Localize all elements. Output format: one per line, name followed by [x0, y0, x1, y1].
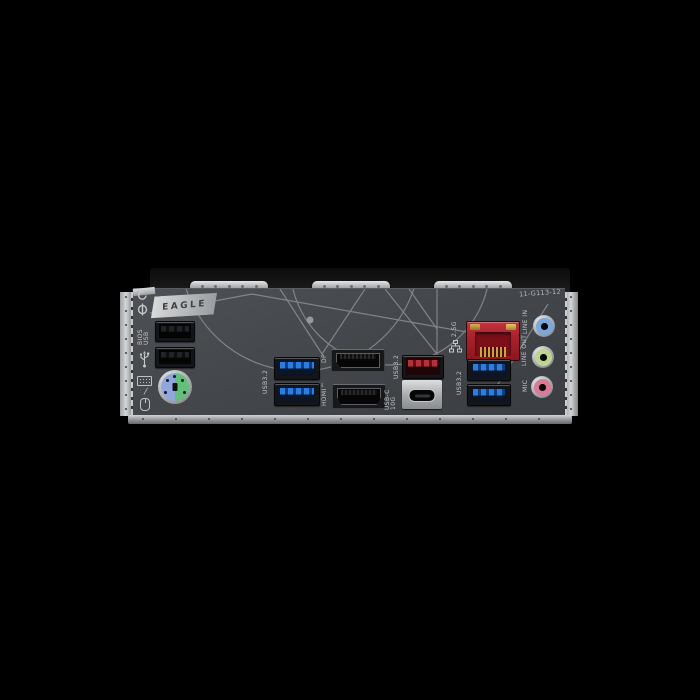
usbc-label: USB-C 10G	[385, 389, 397, 410]
line-out-label: LINE OUT	[522, 335, 528, 366]
line-art-dot	[307, 317, 314, 324]
usb-icon	[139, 351, 150, 368]
lan-speed-label: 2.5G	[452, 321, 458, 337]
audio-jack-mic	[531, 376, 553, 398]
qflash-refresh-icon	[137, 290, 148, 301]
keyboard-icon	[137, 376, 152, 386]
lan-led	[470, 324, 480, 330]
mic-label: MIC	[523, 380, 529, 392]
io-base-strip	[128, 415, 572, 424]
lan-network-icon	[449, 340, 462, 353]
usb32-left-label: USB3.2	[263, 370, 269, 394]
eagle-badge-label: EAGLE	[162, 299, 207, 313]
usb32-red-port	[402, 355, 444, 379]
audio-jack-line-in	[533, 315, 555, 337]
usb2-port-bios	[155, 321, 195, 342]
qflash-button-icon	[137, 303, 148, 316]
lan-port	[466, 321, 520, 361]
dp-label: DP	[322, 354, 328, 363]
usb32-port	[274, 383, 320, 406]
lan-led	[506, 324, 516, 330]
io-bracket-left	[120, 292, 133, 416]
usb32-port	[274, 357, 320, 380]
hdmi-label: HDMI™	[322, 382, 328, 406]
usb32-port	[467, 359, 511, 381]
product-photo-motherboard-rear-io: EAGLE BIOS USB / USB3.2	[0, 0, 700, 700]
audio-jack-line-out	[532, 346, 554, 368]
usb2-port	[155, 347, 195, 368]
usbc-port	[402, 380, 442, 409]
line-in-label: LINE IN	[523, 310, 529, 334]
usb32-right-label: USB3.2	[457, 371, 463, 395]
hdmi-port	[332, 384, 386, 409]
bios-usb-label: BIOS USB	[138, 329, 150, 345]
mouse-icon	[140, 398, 150, 411]
usb32-port	[467, 384, 511, 406]
usb32-red-label: USB3.2	[394, 355, 400, 379]
displayport-port	[331, 349, 385, 372]
io-bracket-right	[565, 292, 578, 416]
ps2-port	[158, 370, 192, 404]
